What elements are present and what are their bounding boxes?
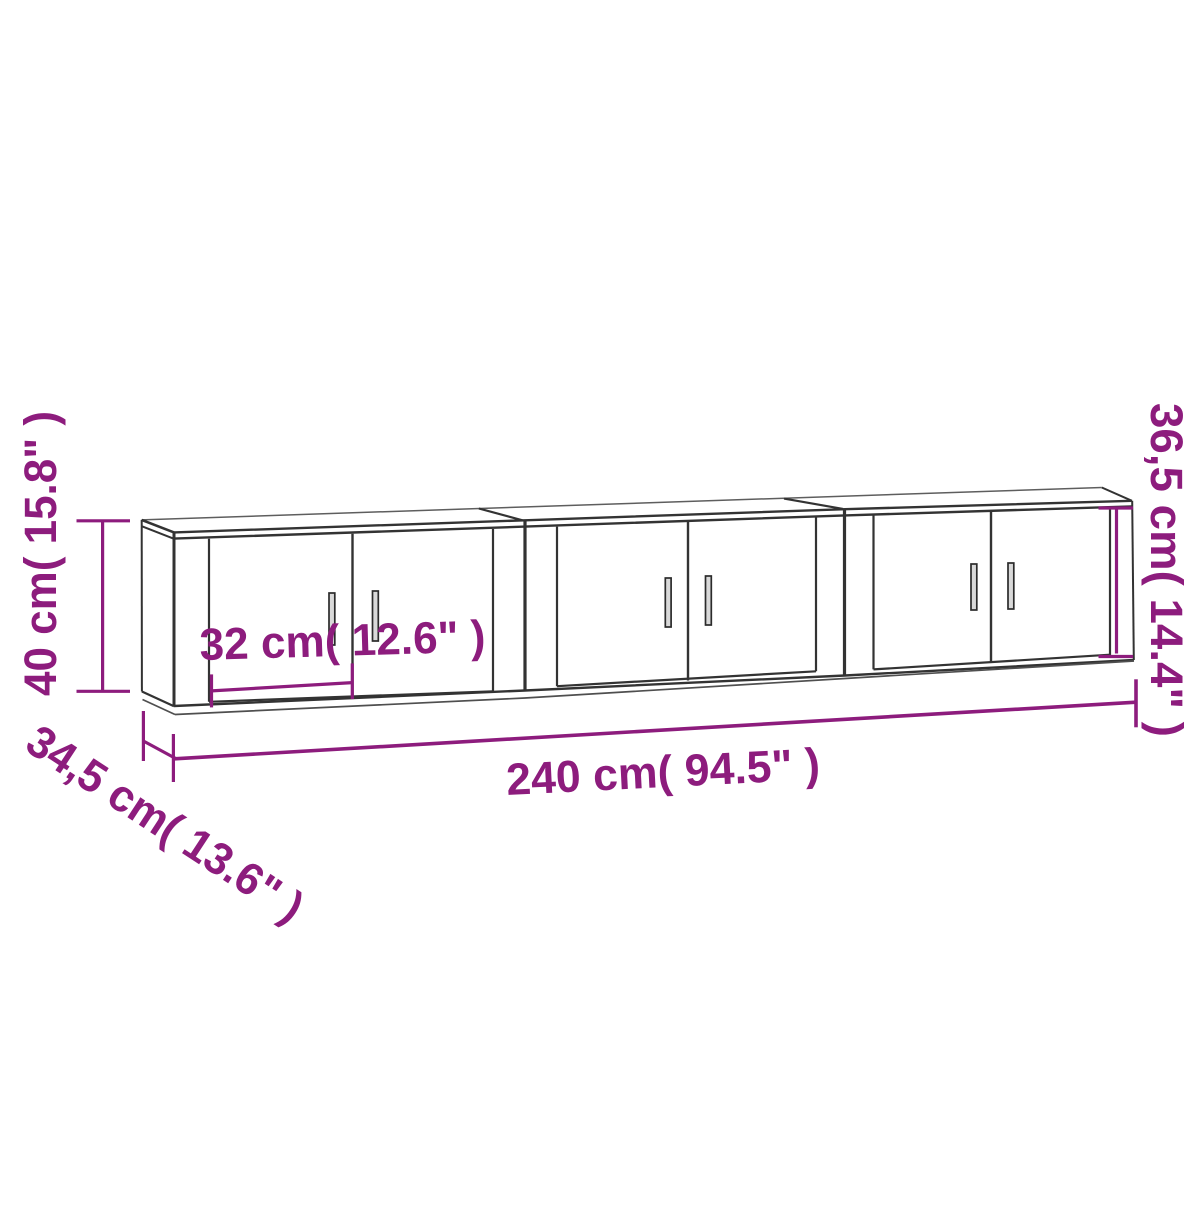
svg-text:36,5 cm( 14.4" ): 36,5 cm( 14.4" ) xyxy=(1141,403,1192,737)
svg-text:32 cm( 12.6" ): 32 cm( 12.6" ) xyxy=(199,611,486,670)
svg-text:40 cm( 15.8" ): 40 cm( 15.8" ) xyxy=(15,411,66,696)
